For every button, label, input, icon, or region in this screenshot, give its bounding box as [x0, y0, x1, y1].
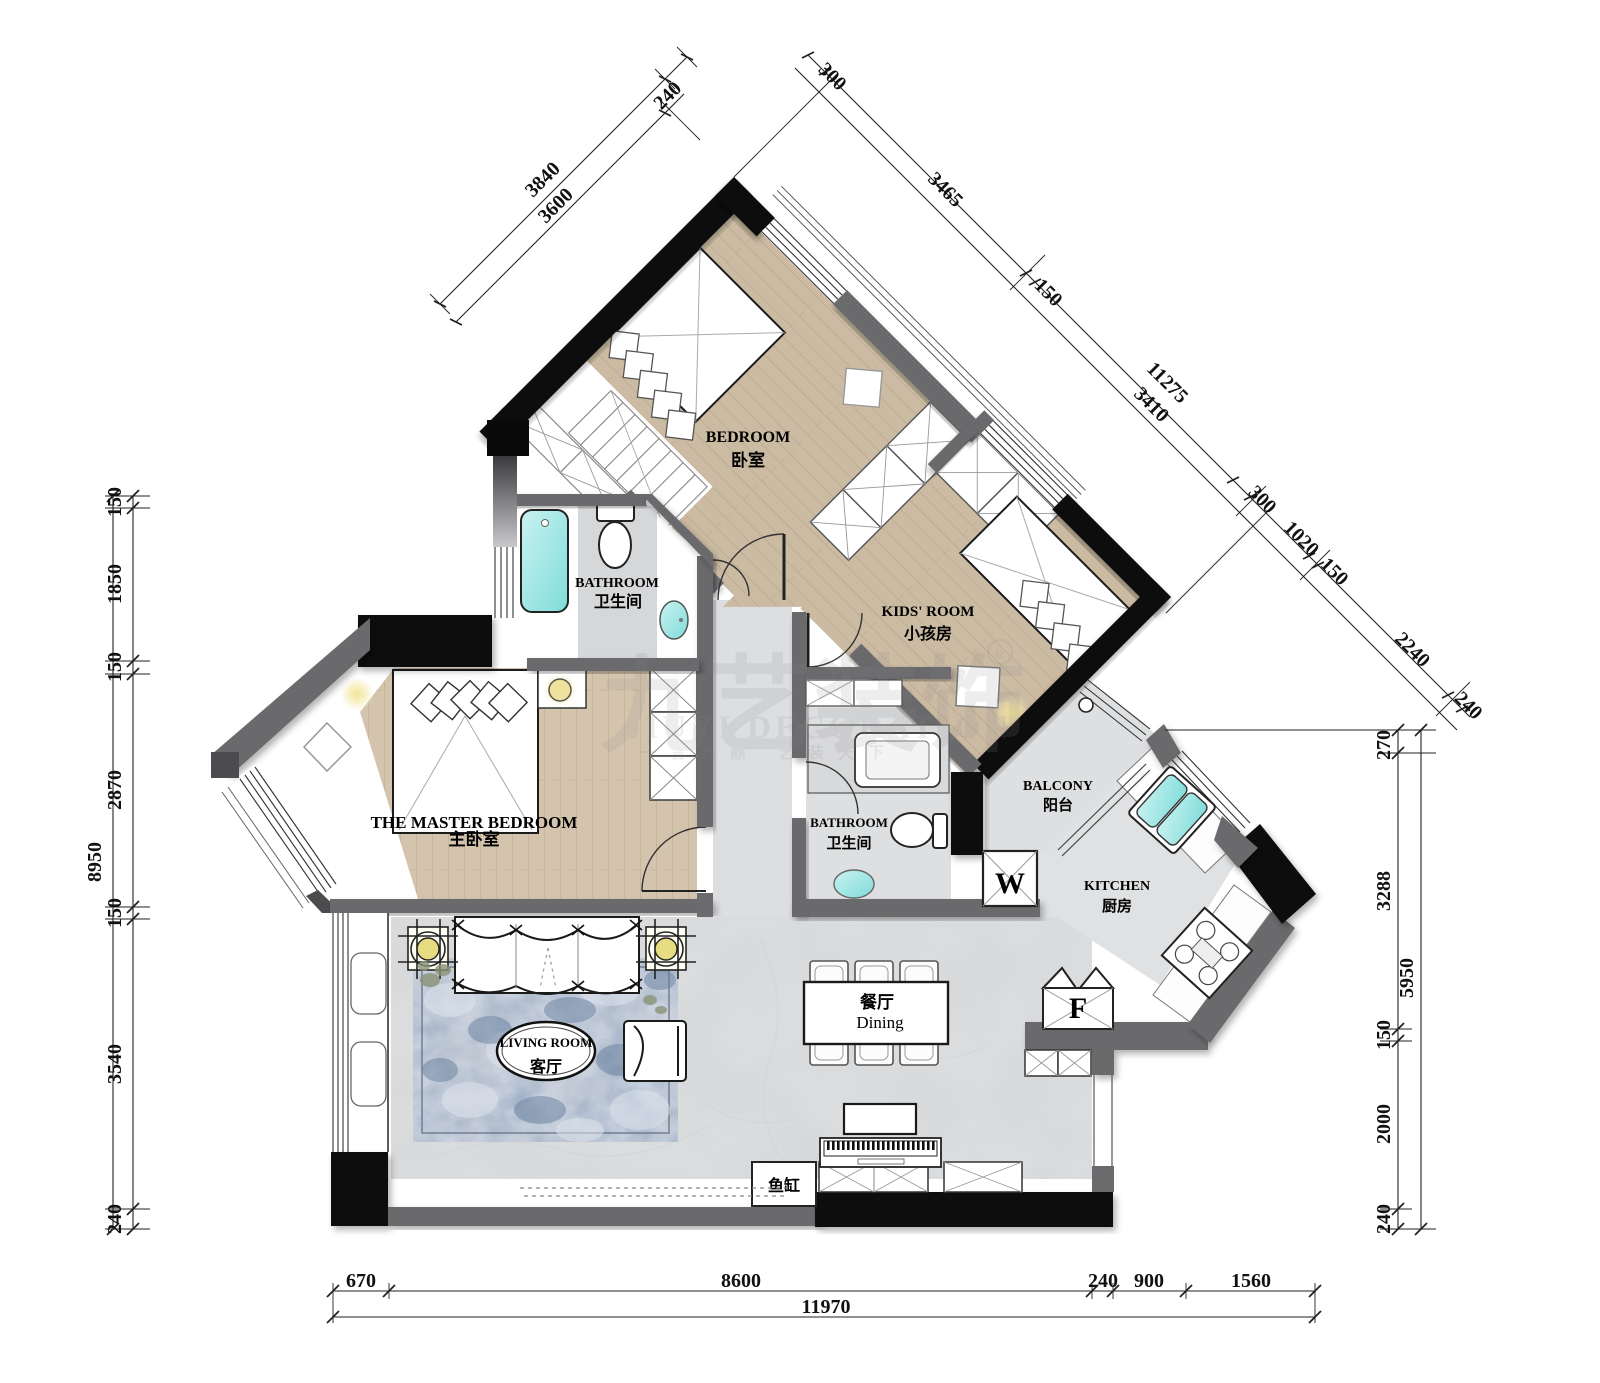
- svg-text:240: 240: [1373, 1204, 1395, 1234]
- svg-text:KIDS' ROOM: KIDS' ROOM: [882, 604, 975, 620]
- svg-text:客厅: 客厅: [530, 1057, 562, 1076]
- svg-text:5950: 5950: [1396, 958, 1418, 998]
- svg-text:小孩房: 小孩房: [904, 624, 952, 643]
- svg-text:670: 670: [346, 1270, 376, 1292]
- svg-text:鱼缸: 鱼缸: [768, 1176, 800, 1195]
- svg-text:150: 150: [104, 652, 126, 682]
- svg-text:2000: 2000: [1373, 1104, 1395, 1144]
- svg-text:270: 270: [1373, 730, 1395, 760]
- svg-text:BEDROOM: BEDROOM: [706, 429, 790, 446]
- svg-text:3540: 3540: [104, 1044, 126, 1084]
- svg-text:Dining: Dining: [856, 1013, 904, 1032]
- svg-text:一言九鼎 艺装天下: 一言九鼎 艺装天下: [640, 743, 898, 762]
- svg-text:KITCHEN: KITCHEN: [1084, 879, 1150, 894]
- svg-text:主卧室: 主卧室: [449, 829, 500, 849]
- svg-text:8950: 8950: [84, 842, 106, 882]
- svg-text:BATHROOM: BATHROOM: [810, 815, 888, 830]
- svg-text:卫生间: 卫生间: [826, 834, 871, 852]
- svg-text:BATHROOM: BATHROOM: [575, 576, 659, 591]
- svg-text:240: 240: [104, 1204, 126, 1234]
- svg-text:150: 150: [104, 898, 126, 928]
- svg-text:BALCONY: BALCONY: [1023, 779, 1093, 794]
- svg-text:厨房: 厨房: [1102, 897, 1132, 915]
- svg-text:150: 150: [104, 487, 126, 517]
- svg-text:卧室: 卧室: [731, 450, 765, 470]
- svg-text:3288: 3288: [1373, 871, 1395, 911]
- svg-text:阳台: 阳台: [1043, 796, 1073, 814]
- svg-text:8600: 8600: [721, 1270, 761, 1292]
- svg-text:900: 900: [1134, 1270, 1164, 1292]
- svg-text:W: W: [995, 867, 1025, 900]
- svg-text:F: F: [1069, 992, 1087, 1025]
- svg-text:2870: 2870: [104, 770, 126, 810]
- svg-text:1560: 1560: [1231, 1270, 1271, 1292]
- svg-text:11970: 11970: [802, 1296, 851, 1318]
- svg-text:卫生间: 卫生间: [594, 592, 642, 611]
- svg-text:JIUYI DECORATION: JIUYI DECORATION: [625, 710, 1012, 746]
- svg-text:LIVING ROOM: LIVING ROOM: [500, 1035, 593, 1050]
- svg-text:150: 150: [1373, 1020, 1395, 1050]
- svg-text:R: R: [995, 648, 1006, 663]
- svg-text:餐厅: 餐厅: [860, 992, 894, 1012]
- svg-text:240: 240: [1088, 1270, 1118, 1292]
- svg-text:1850: 1850: [104, 564, 126, 604]
